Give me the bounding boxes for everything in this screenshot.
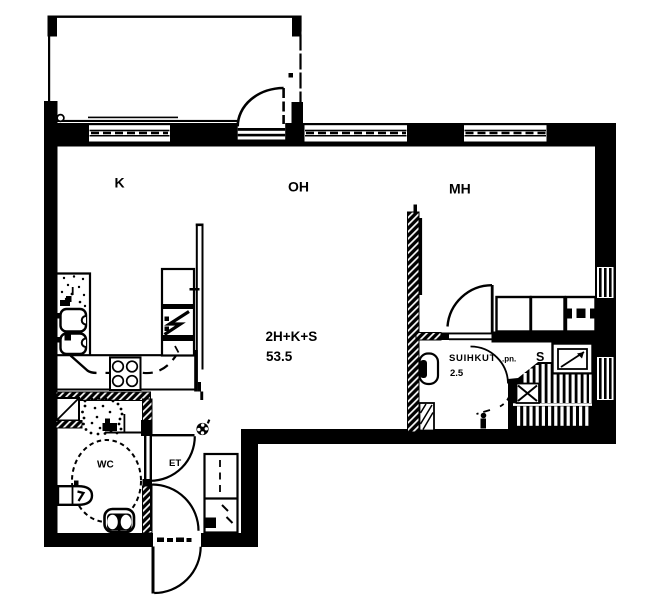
svg-text:OH: OH [288,179,309,195]
svg-text:2.5: 2.5 [450,368,464,379]
svg-text:ET: ET [169,458,181,469]
svg-text:2H+K+S: 2H+K+S [266,329,318,344]
svg-text:.pn.: .pn. [502,355,516,364]
svg-text:K: K [115,175,125,191]
svg-text:53.5: 53.5 [266,349,293,364]
svg-text:WC: WC [97,460,114,471]
svg-text:MH: MH [449,181,471,197]
svg-text:SUIHKUT: SUIHKUT [449,353,496,364]
svg-text:S: S [536,350,544,364]
